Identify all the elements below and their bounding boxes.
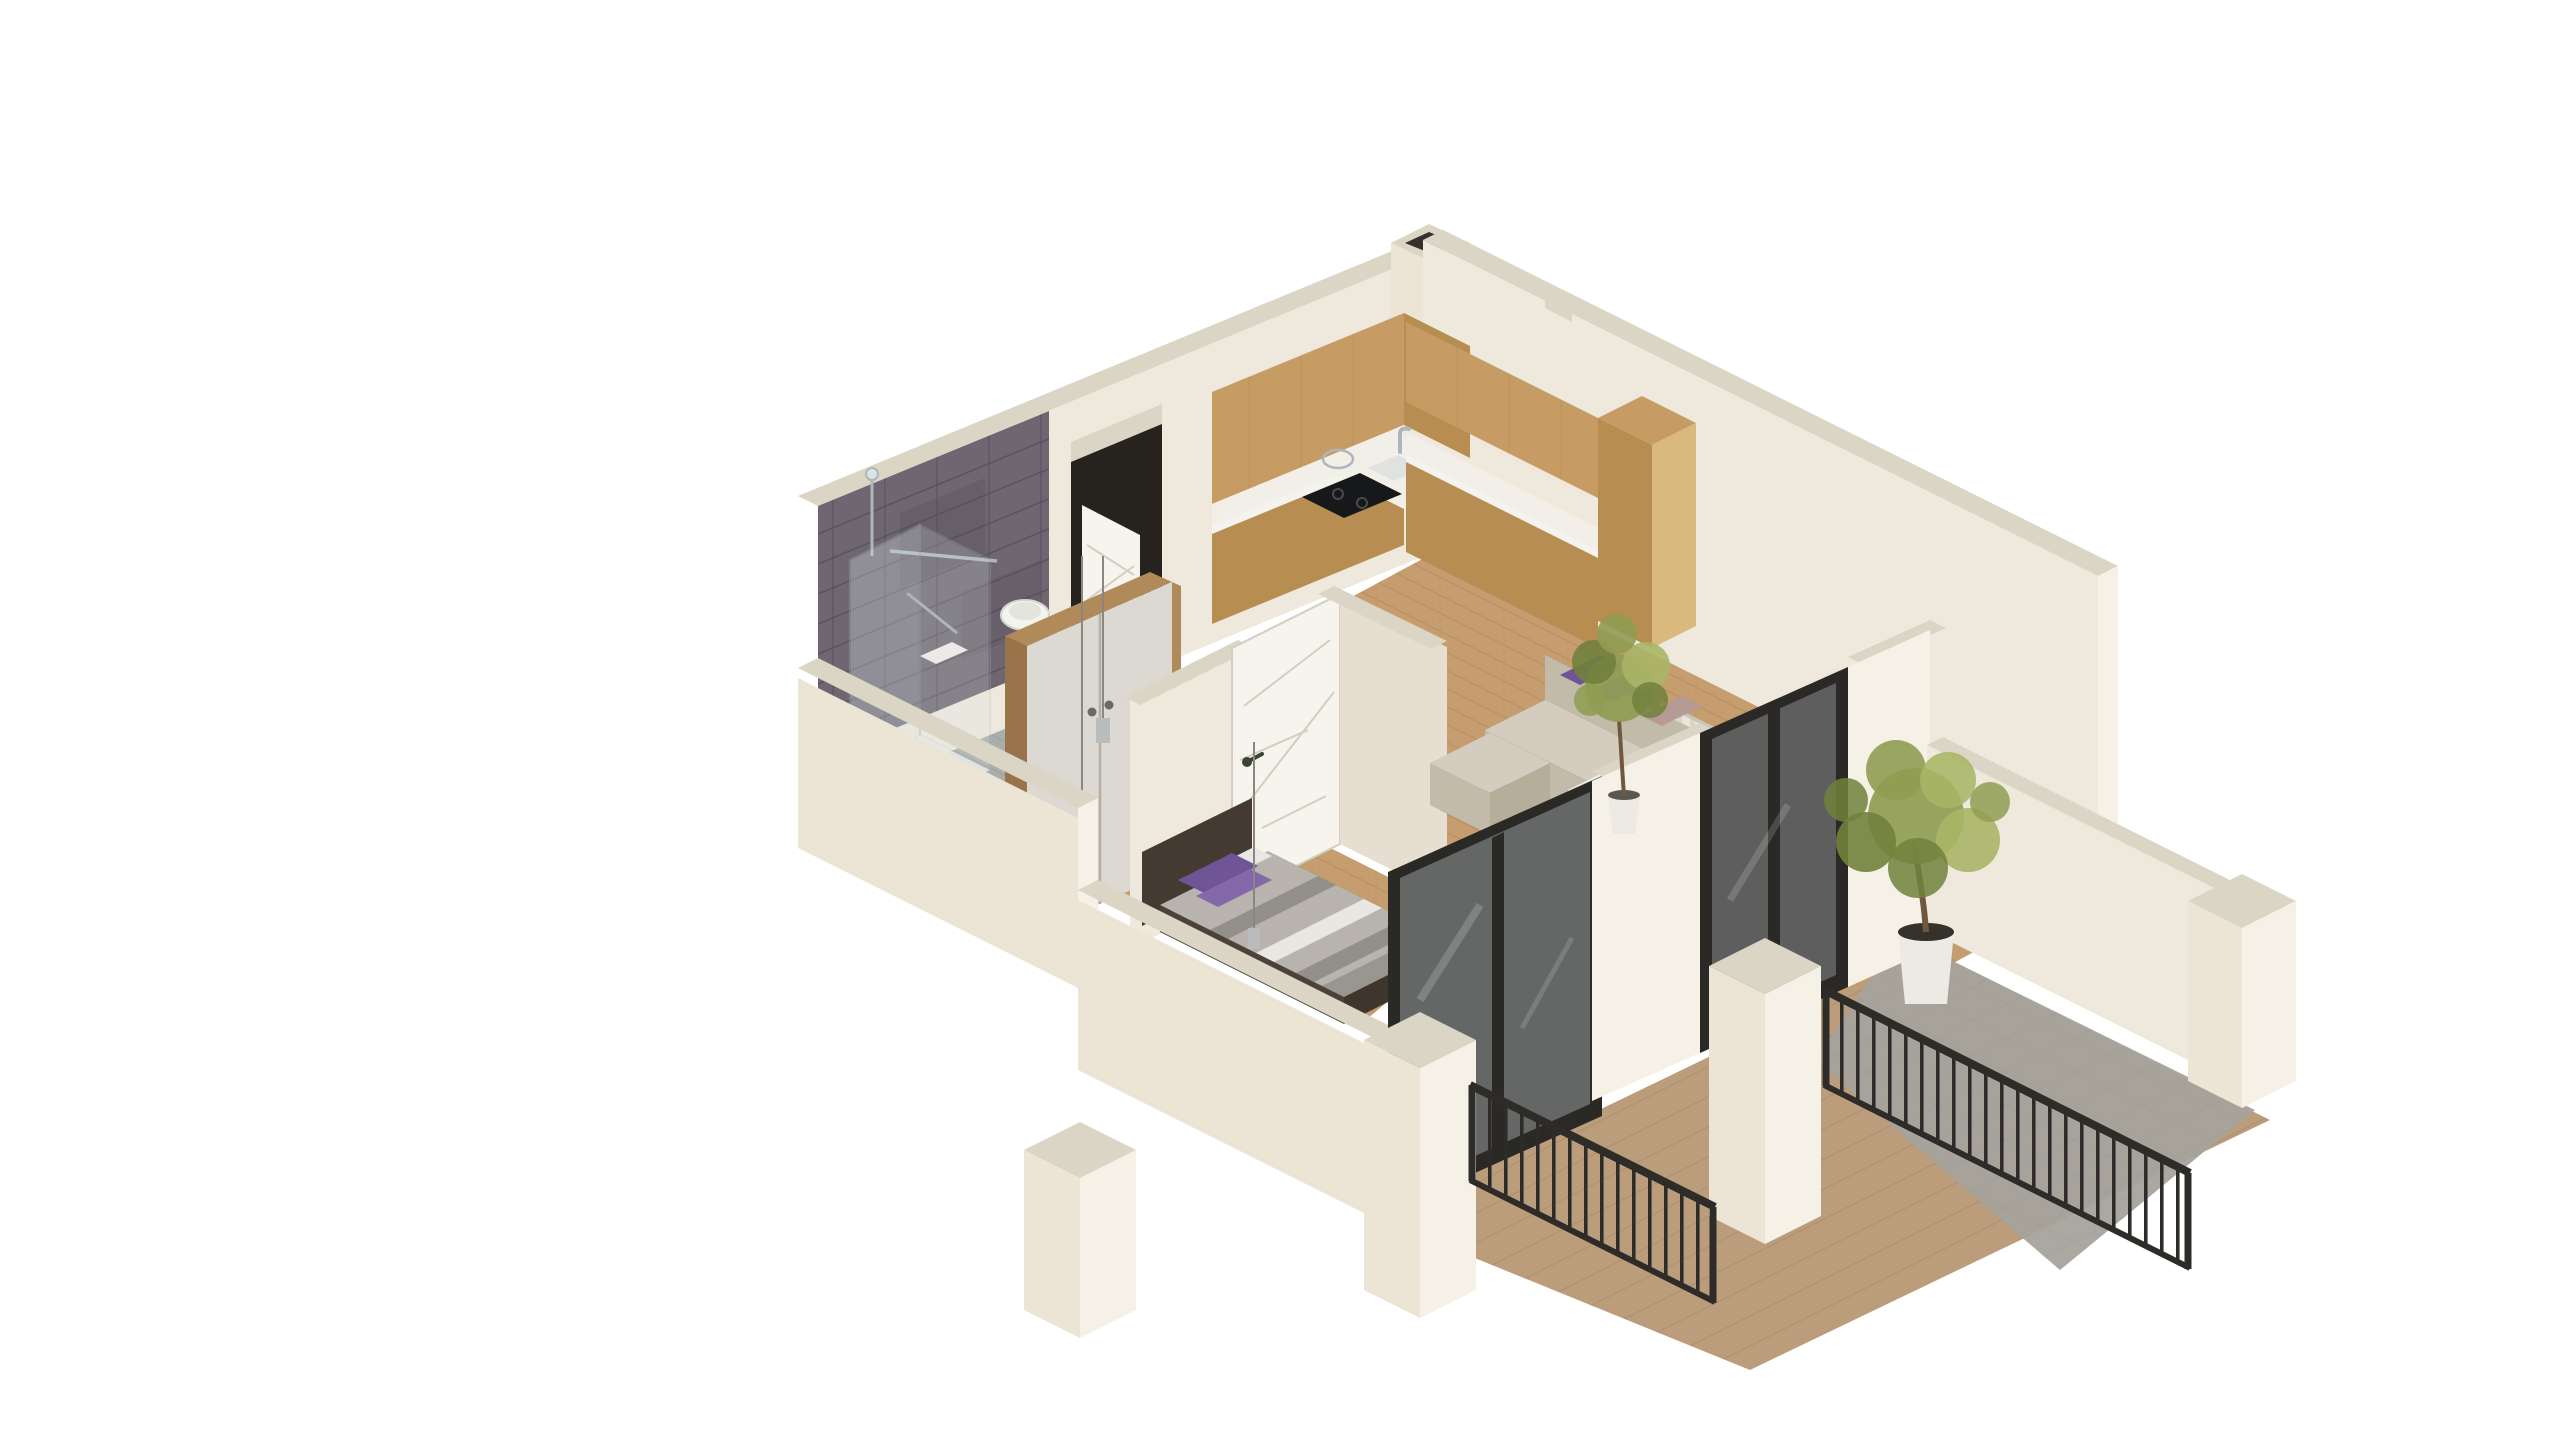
olive-foliage	[1866, 740, 1926, 800]
kitchen-tall-column-side	[1652, 423, 1696, 648]
indoor-plant-foliage	[1574, 684, 1606, 716]
pier-bedroom-door	[1364, 1012, 1476, 1318]
wardrobe-knob	[1088, 708, 1097, 717]
olive-foliage	[1920, 752, 1976, 808]
olive-foliage	[1970, 782, 2010, 822]
apartment-floorplan-render	[0, 0, 2560, 1440]
pier-sw-south-face	[1024, 1150, 1080, 1338]
pier-southwest	[1024, 1122, 1136, 1338]
shower-head	[866, 468, 878, 480]
pier-bd-east-face	[1420, 1040, 1476, 1318]
olive-foliage	[1824, 778, 1868, 822]
pendant-shade	[1096, 718, 1110, 743]
pier-sw-east-face	[1080, 1150, 1136, 1338]
isometric-scene	[0, 0, 2560, 1440]
kitchen-tall-column-front	[1598, 418, 1652, 648]
facade-pier-face	[1592, 733, 1700, 1101]
indoor-plant-foliage	[1632, 682, 1668, 718]
pier-mid-south-face	[1709, 966, 1765, 1244]
indoor-plant-foliage	[1597, 614, 1637, 654]
toilet-seat	[1009, 602, 1041, 620]
corner-pier-south-face	[2188, 901, 2242, 1108]
pier-mid-east-face	[1765, 966, 1821, 1244]
olive-foliage	[1888, 838, 1948, 898]
pier-middle	[1709, 938, 1821, 1244]
wardrobe-knob	[1105, 701, 1114, 710]
indoor-plant-pot	[1608, 795, 1640, 834]
bedside-pendant-shade	[1248, 928, 1260, 949]
pier-bd-south-face	[1364, 1040, 1420, 1318]
corner-pier-east-face	[2242, 901, 2296, 1108]
terrace-corner-pier	[2188, 874, 2296, 1108]
olive-tree-pot	[1898, 932, 1954, 1004]
